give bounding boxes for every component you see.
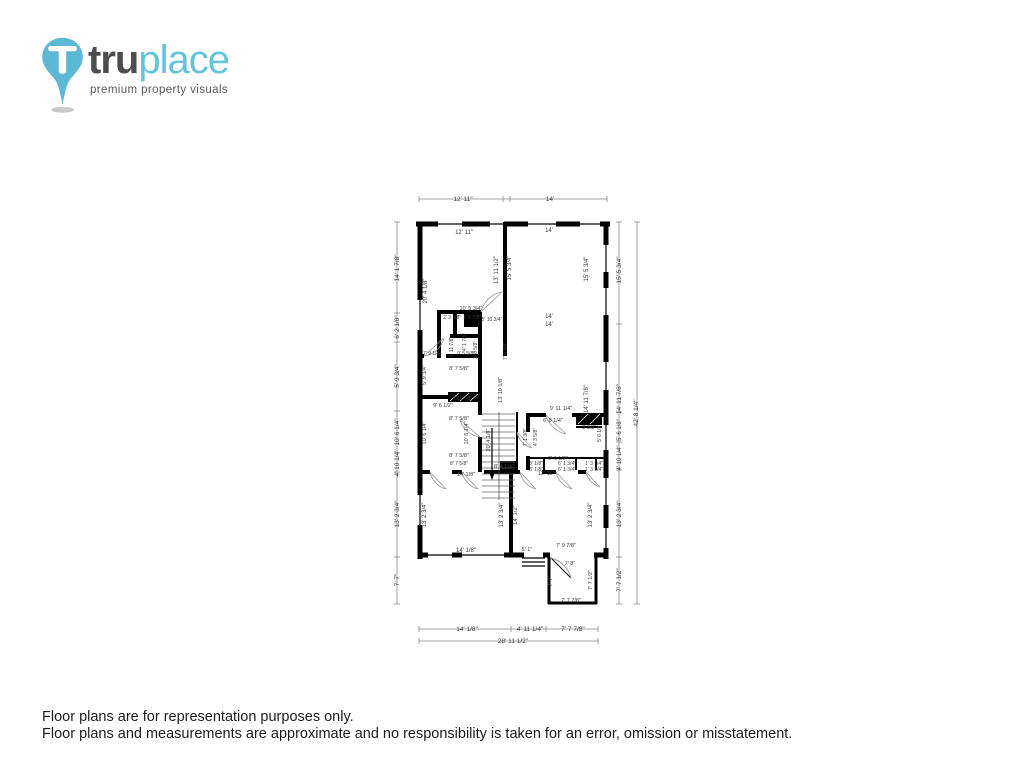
disclaimer: Floor plans are for representation purpo… bbox=[42, 709, 792, 743]
dimension-label: 6' 8 1/4" bbox=[543, 418, 563, 424]
dimension-label: 14' 1/8" bbox=[457, 472, 475, 478]
dimension-label: 14' 1/8" bbox=[456, 626, 478, 633]
dimension-label: 10' 5 3/4" bbox=[460, 306, 483, 312]
dimension-label: 14' 11 7/8" bbox=[584, 385, 590, 413]
dimension-label: 14' 1/8" bbox=[456, 548, 476, 554]
dimension-label: 13' 2 3/4" bbox=[394, 500, 401, 528]
dimension-label: 28' 11 1/2" bbox=[498, 638, 529, 645]
dimension-label: 13' 2 3/4" bbox=[588, 503, 594, 528]
dimension-label: 3' 3/8" bbox=[582, 425, 596, 431]
dimension-label: 7' 7 1/2" bbox=[616, 568, 623, 592]
dimension-label: 1' 3 1/4" bbox=[585, 467, 603, 473]
dimension-label: 7' 7" bbox=[394, 573, 401, 586]
dimension-label: 14' bbox=[545, 322, 553, 328]
dimension-label: 6' 2 1/8" bbox=[394, 315, 401, 339]
dimension-label: 4' 11 1/4" bbox=[517, 626, 544, 633]
dimension-label: 3' 11 7/8" bbox=[449, 337, 455, 358]
dimension-label: 8' 7 5/8" bbox=[449, 453, 469, 459]
dimension-label: 4' 1 7/8" bbox=[462, 333, 468, 351]
dimension-label: 7' 8" bbox=[565, 561, 576, 567]
disclaimer-line-1: Floor plans are for representation purpo… bbox=[42, 709, 792, 726]
dimension-label: 7' 7 7/8" bbox=[561, 626, 585, 633]
dimension-label: 8' 7 5/8" bbox=[449, 416, 469, 422]
dimension-label: 13' 2 3/4" bbox=[422, 503, 428, 528]
dimension-label: 15' 5 3/4" bbox=[584, 257, 590, 282]
dimension-label: 8' 7 5/8" bbox=[449, 366, 469, 372]
dimension-label: 5' 10 3/4" bbox=[482, 317, 503, 323]
dimension-label: 7' 7 1/2" bbox=[588, 570, 594, 590]
dimension-label: 20' 4 1/8" bbox=[423, 279, 429, 304]
dimension-label: 7' 7" bbox=[548, 576, 554, 587]
disclaimer-line-2: Floor plans and measurements are approxi… bbox=[42, 726, 792, 743]
dimension-label: 7' 1 3/8" bbox=[523, 428, 529, 446]
dimension-label: 20' 4 1/8" bbox=[486, 429, 492, 452]
dimension-label: 13' 2 3/4" bbox=[499, 503, 505, 528]
dimension-label: 3' 1/8" bbox=[529, 467, 543, 473]
dimension-label: 14' 1/2" bbox=[513, 505, 519, 525]
dimension-label: 8' 4 1/4" bbox=[494, 464, 514, 470]
dimension-label: 2' 3 3/8" bbox=[443, 315, 461, 321]
dimension-label: 10' 6 1/4" bbox=[394, 418, 401, 446]
dimension-label: 9' 6 1/2" bbox=[433, 403, 453, 409]
dimension-label: 8' 7 5/8" bbox=[450, 461, 468, 467]
dimension-label: 1' 5 7/8" bbox=[463, 315, 481, 321]
door-arcs bbox=[424, 292, 600, 489]
dimension-label: 7' 9 1/4" bbox=[423, 351, 441, 357]
dimension-label: 10' 6 1/4" bbox=[464, 422, 470, 445]
dimension-label: 9' 11 1/4" bbox=[550, 406, 573, 412]
dimension-label: 15' 5 3/4" bbox=[616, 256, 623, 284]
dimension-label: 6' 1 3/4" bbox=[558, 467, 576, 473]
dimension-label: 5' 1" bbox=[522, 547, 533, 553]
dimension-label: 13' 10 1/8" bbox=[498, 377, 504, 403]
dimension-label: 4' 10 1/4" bbox=[394, 449, 401, 477]
dimension-label: 12' 11" bbox=[455, 230, 473, 236]
dimension-label: 5' 6 1/8" bbox=[617, 419, 623, 441]
dimension-label: 7' 8 5/8" bbox=[503, 342, 509, 360]
dimension-label: 5' 9 3/4" bbox=[422, 365, 428, 385]
dimension-label: 5' 9 3/4" bbox=[394, 364, 401, 388]
dimension-label: 7' 7 7/8" bbox=[561, 598, 581, 604]
dimension-label: 5' 6 1/8" bbox=[597, 424, 603, 442]
dimension-label: 14' bbox=[545, 228, 553, 234]
dimension-label: 7' 9 7/8" bbox=[556, 543, 576, 549]
dimension-label: 14' 1 7/8" bbox=[394, 254, 401, 282]
floorplan-drawing: 12' 11"14'12' 11"14'14' 1 7/8"6' 2 1/8"5… bbox=[0, 0, 1024, 768]
dimension-label: 13' 2 3/4" bbox=[616, 500, 623, 528]
dimension-label: 4' 10 1/4" bbox=[617, 446, 623, 471]
dimension-label: 42' 8 1/4" bbox=[633, 399, 640, 427]
dimension-label: 9' 5 5/8" bbox=[457, 351, 475, 357]
dimension-label: 2' 11 7/8" bbox=[452, 396, 473, 402]
dimension-label: 14' 11 7/8" bbox=[616, 383, 623, 414]
dimension-label: 15' 5 3/4" bbox=[507, 256, 513, 281]
dimension-label: 13' 11 1/2" bbox=[494, 256, 500, 284]
dimension-label: 14' bbox=[546, 196, 554, 203]
dimension-label: 12' 11" bbox=[453, 196, 473, 203]
dimension-label: 14' bbox=[545, 314, 553, 320]
dimension-label: 10' 6 1/4" bbox=[422, 422, 428, 445]
dimension-label: 4' 3 5/8" bbox=[533, 428, 539, 446]
